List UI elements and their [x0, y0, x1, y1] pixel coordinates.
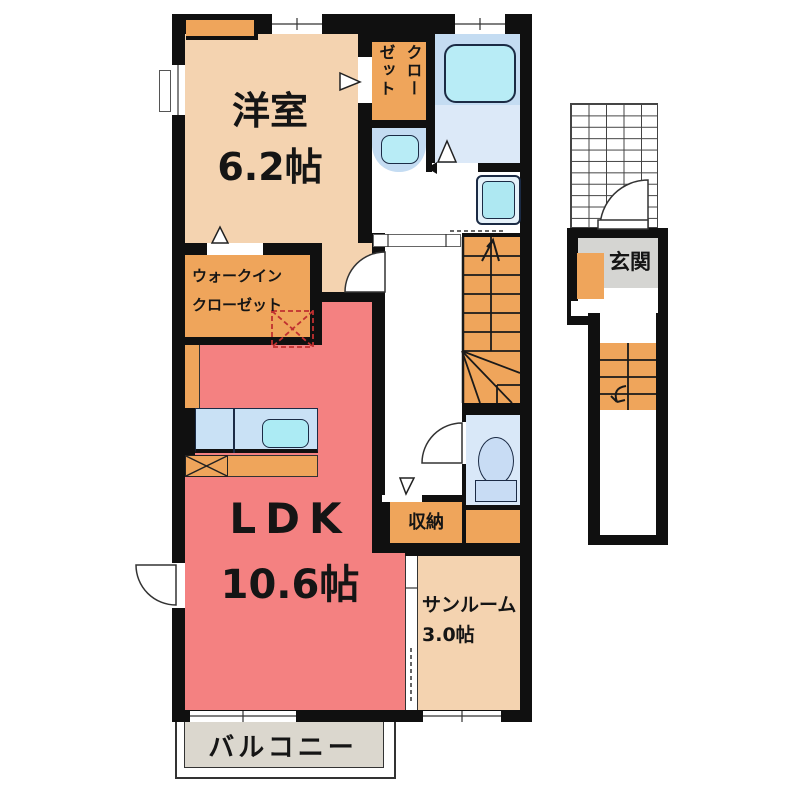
stairwell-grid [570, 103, 658, 228]
entrance-stairs [600, 343, 656, 410]
hatch-box [185, 455, 228, 477]
bedroom-top-shelf [186, 20, 258, 40]
bathroom-door-opening [432, 163, 478, 172]
washroom-door-bar [373, 234, 461, 247]
bedroom-name: 洋室 [180, 80, 360, 135]
ldk-bottom-window [190, 711, 296, 722]
kitchen-wall-stub [185, 406, 195, 455]
closet-label-left: ゼット [374, 44, 398, 120]
bathroom-floor [435, 105, 520, 163]
ldk-size: 10.6帖 [185, 552, 395, 610]
ldk-left-door-opening [172, 563, 185, 608]
wic-door-opening [207, 243, 263, 255]
closet-label: ゼット クロー [372, 44, 426, 120]
toilet-door-leaf [460, 422, 466, 464]
sunroom-bottom-window [423, 711, 501, 722]
toilet-bowl-icon [478, 437, 514, 485]
sunroom-divider [405, 556, 418, 710]
balcony-label: バルコニー [184, 727, 382, 764]
sunroom-name: サンルーム [422, 590, 516, 617]
closet-label-right: クロー [401, 44, 425, 120]
ldk-room-upper [322, 302, 372, 345]
bathroom-top-window [455, 14, 505, 34]
bathtub-icon [444, 44, 516, 103]
wall-closet-bath [426, 14, 435, 172]
entrance-label: 玄関 [602, 246, 658, 276]
walk-in-closet-label: ウォークイン クローゼット [192, 262, 308, 319]
shoe-cabinet [577, 253, 604, 299]
counter-strip-left [185, 345, 200, 408]
sunroom-cabinet [466, 510, 520, 543]
wall-niche [571, 301, 588, 316]
sunroom-size: 3.0帖 [422, 620, 475, 647]
floorplan-canvas: 洋室 6.2帖 ゼット クロー ウォークイン クローゼット LDK 10.6帖 … [0, 0, 800, 798]
stairs-area [462, 237, 520, 403]
bedroom-left-window-sill [159, 70, 171, 112]
ldk-name: LDK [185, 494, 395, 543]
wic-line2: クローゼット [192, 291, 308, 320]
washbasin-bowl-icon [381, 135, 419, 164]
toilet-tank-icon [475, 480, 517, 502]
hallway-floor [385, 233, 462, 495]
storage-label: 収納 [390, 505, 462, 541]
bedroom-top-window [272, 14, 322, 34]
wic-line1: ウォークイン [192, 262, 308, 291]
ldk-exterior-door-arc [136, 565, 176, 605]
bedroom-vestibule [322, 243, 372, 292]
bedroom-size: 6.2帖 [180, 136, 360, 191]
kitchen-counter-divider [233, 408, 235, 453]
washing-machine-icon [482, 181, 515, 219]
bedroom-side-door-opening [358, 57, 372, 103]
kitchen-sink-icon [262, 419, 309, 448]
